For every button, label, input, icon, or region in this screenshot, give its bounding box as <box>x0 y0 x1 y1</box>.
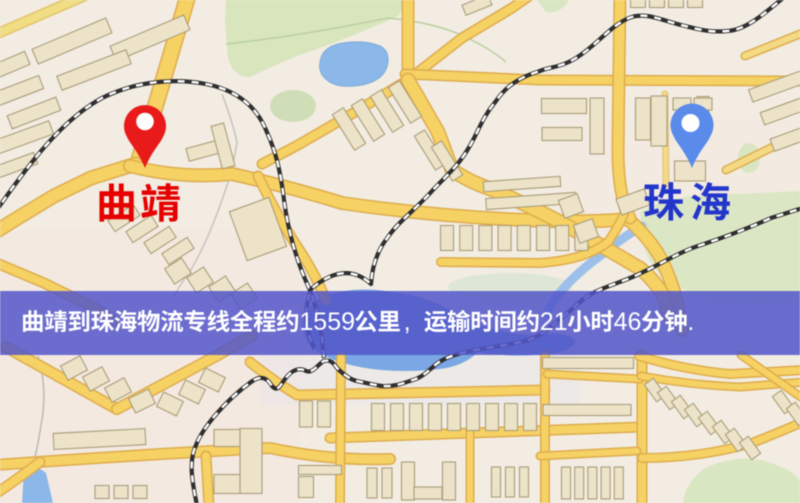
svg-text:,: , <box>404 308 411 336</box>
svg-text:21: 21 <box>540 308 568 336</box>
svg-text:.: . <box>687 308 694 336</box>
svg-text:1559: 1559 <box>299 308 355 336</box>
svg-text:46: 46 <box>614 308 642 336</box>
